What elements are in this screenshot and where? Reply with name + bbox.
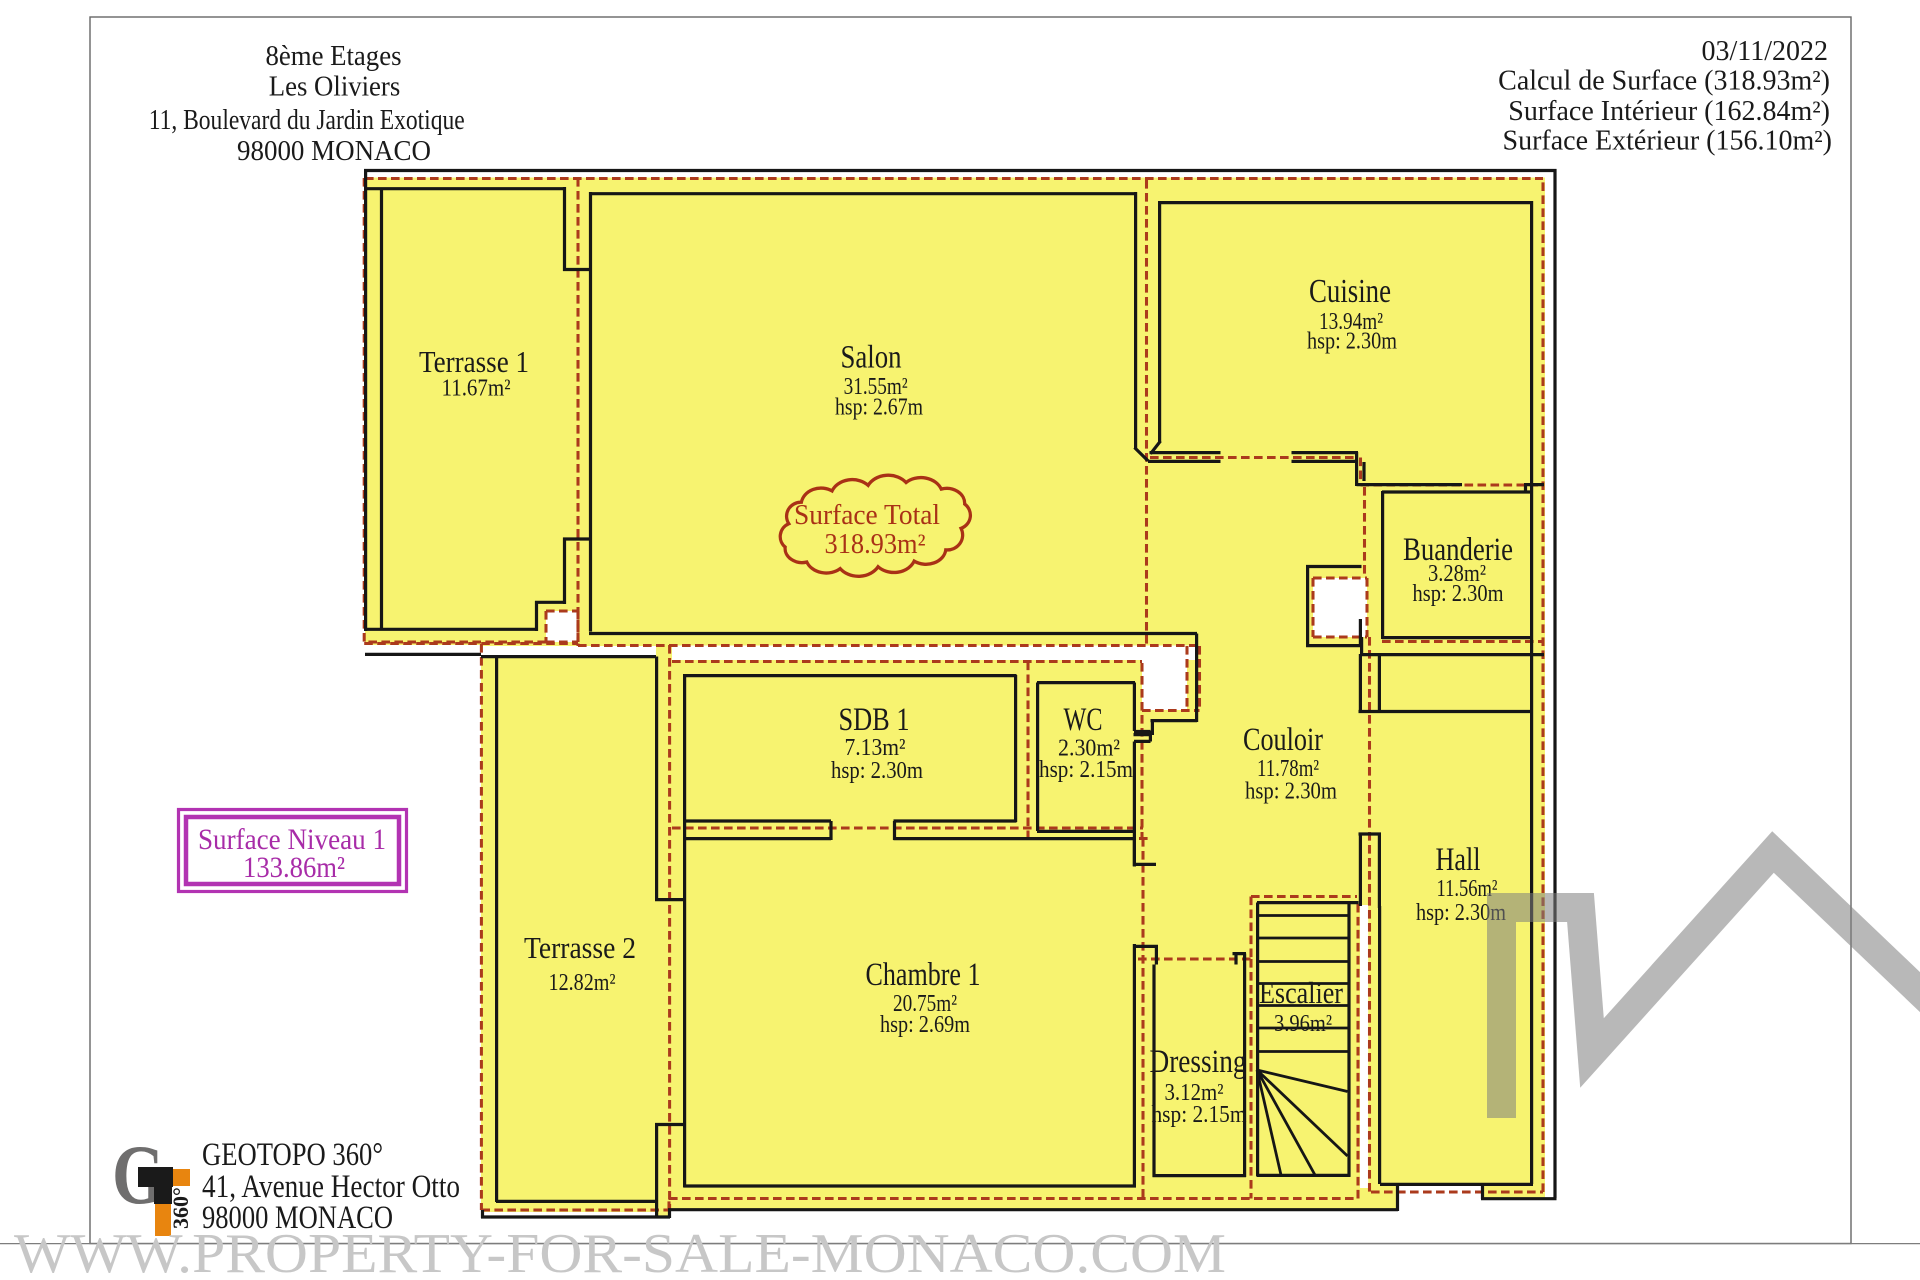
svg-text:GEOTOPO 360°: GEOTOPO 360° [202,1137,383,1173]
svg-text:Surface Intérieur (162.84m²): Surface Intérieur (162.84m²) [1508,96,1830,127]
svg-text:318.93m²: 318.93m² [825,529,926,560]
svg-text:WC: WC [1064,702,1103,738]
svg-text:Surface Total: Surface Total [794,500,940,531]
svg-text:11.67m²: 11.67m² [442,376,511,402]
svg-text:SDB 1: SDB 1 [839,702,910,738]
svg-text:hsp: 2.67m: hsp: 2.67m [835,395,923,421]
svg-text:hsp: 2.30m: hsp: 2.30m [1245,779,1337,805]
svg-text:Escalier: Escalier [1259,975,1344,1010]
svg-text:Terrasse 2: Terrasse 2 [524,930,636,965]
svg-text:8ème Etages: 8ème Etages [266,41,402,72]
svg-text:Couloir: Couloir [1243,722,1323,758]
svg-text:hsp: 2.30m: hsp: 2.30m [1413,581,1504,607]
svg-text:03/11/2022: 03/11/2022 [1701,36,1828,67]
svg-text:WWW.PROPERTY-FOR-SALE-MONACO.C: WWW.PROPERTY-FOR-SALE-MONACO.COM [14,1223,1226,1280]
svg-text:hsp: 2.15m: hsp: 2.15m [1039,757,1133,783]
svg-text:Hall: Hall [1436,842,1481,878]
svg-text:hsp: 2.30m: hsp: 2.30m [1307,329,1397,355]
svg-text:12.82m²: 12.82m² [549,970,616,996]
svg-text:98000 MONACO: 98000 MONACO [237,136,431,167]
svg-text:Dressing: Dressing [1150,1044,1247,1080]
svg-text:Calcul de Surface (318.93m²): Calcul de Surface (318.93m²) [1498,66,1830,97]
svg-text:11, Boulevard du Jardin Exotiq: 11, Boulevard du Jardin Exotique [149,105,465,136]
svg-text:hsp: 2.30m: hsp: 2.30m [831,758,923,784]
svg-text:Les Oliviers: Les Oliviers [269,72,401,103]
svg-text:Cuisine: Cuisine [1309,273,1391,310]
svg-text:Terrasse 1: Terrasse 1 [419,344,529,379]
svg-text:hsp: 2.15m: hsp: 2.15m [1152,1102,1247,1128]
svg-text:Surface Extérieur (156.10m²): Surface Extérieur (156.10m²) [1503,126,1833,157]
svg-text:3.96m²: 3.96m² [1274,1011,1332,1037]
svg-text:Salon: Salon [841,340,902,376]
svg-text:hsp: 2.69m: hsp: 2.69m [880,1012,970,1038]
svg-text:Chambre 1: Chambre 1 [866,957,981,993]
svg-text:133.86m²: 133.86m² [243,851,345,884]
